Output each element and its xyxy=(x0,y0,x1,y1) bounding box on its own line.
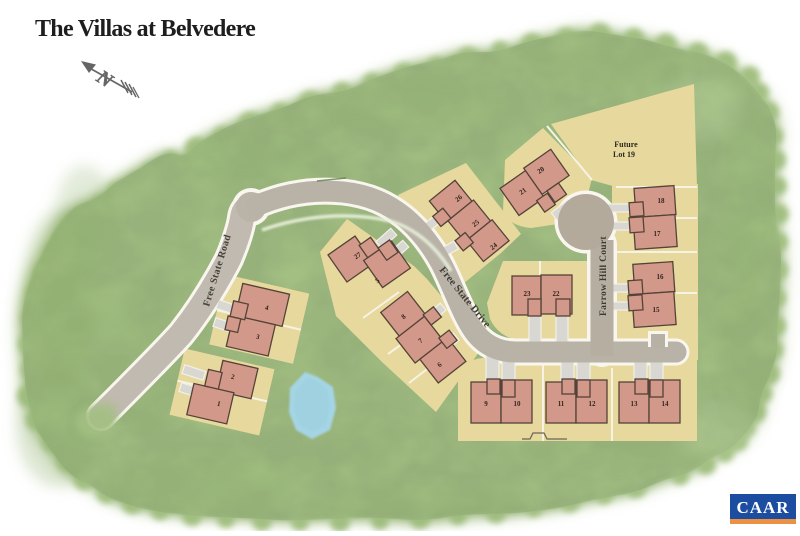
svg-text:11: 11 xyxy=(558,400,565,408)
svg-text:16: 16 xyxy=(657,273,665,281)
svg-text:Future: Future xyxy=(614,140,638,149)
svg-text:22: 22 xyxy=(553,290,561,298)
svg-text:N: N xyxy=(92,65,118,93)
svg-text:23: 23 xyxy=(524,290,532,298)
svg-text:The Villas at Belvedere: The Villas at Belvedere xyxy=(35,16,256,42)
svg-text:CAAR: CAAR xyxy=(736,498,789,517)
svg-text:14: 14 xyxy=(662,400,670,408)
svg-text:10: 10 xyxy=(514,400,522,408)
svg-text:18: 18 xyxy=(658,197,666,205)
svg-text:17: 17 xyxy=(654,230,662,238)
svg-text:9: 9 xyxy=(484,400,488,408)
svg-text:12: 12 xyxy=(589,400,597,408)
svg-text:Lot 19: Lot 19 xyxy=(613,150,635,159)
svg-text:Farrow Hill Court: Farrow Hill Court xyxy=(599,236,609,316)
svg-text:15: 15 xyxy=(653,306,661,314)
svg-text:13: 13 xyxy=(631,400,639,408)
